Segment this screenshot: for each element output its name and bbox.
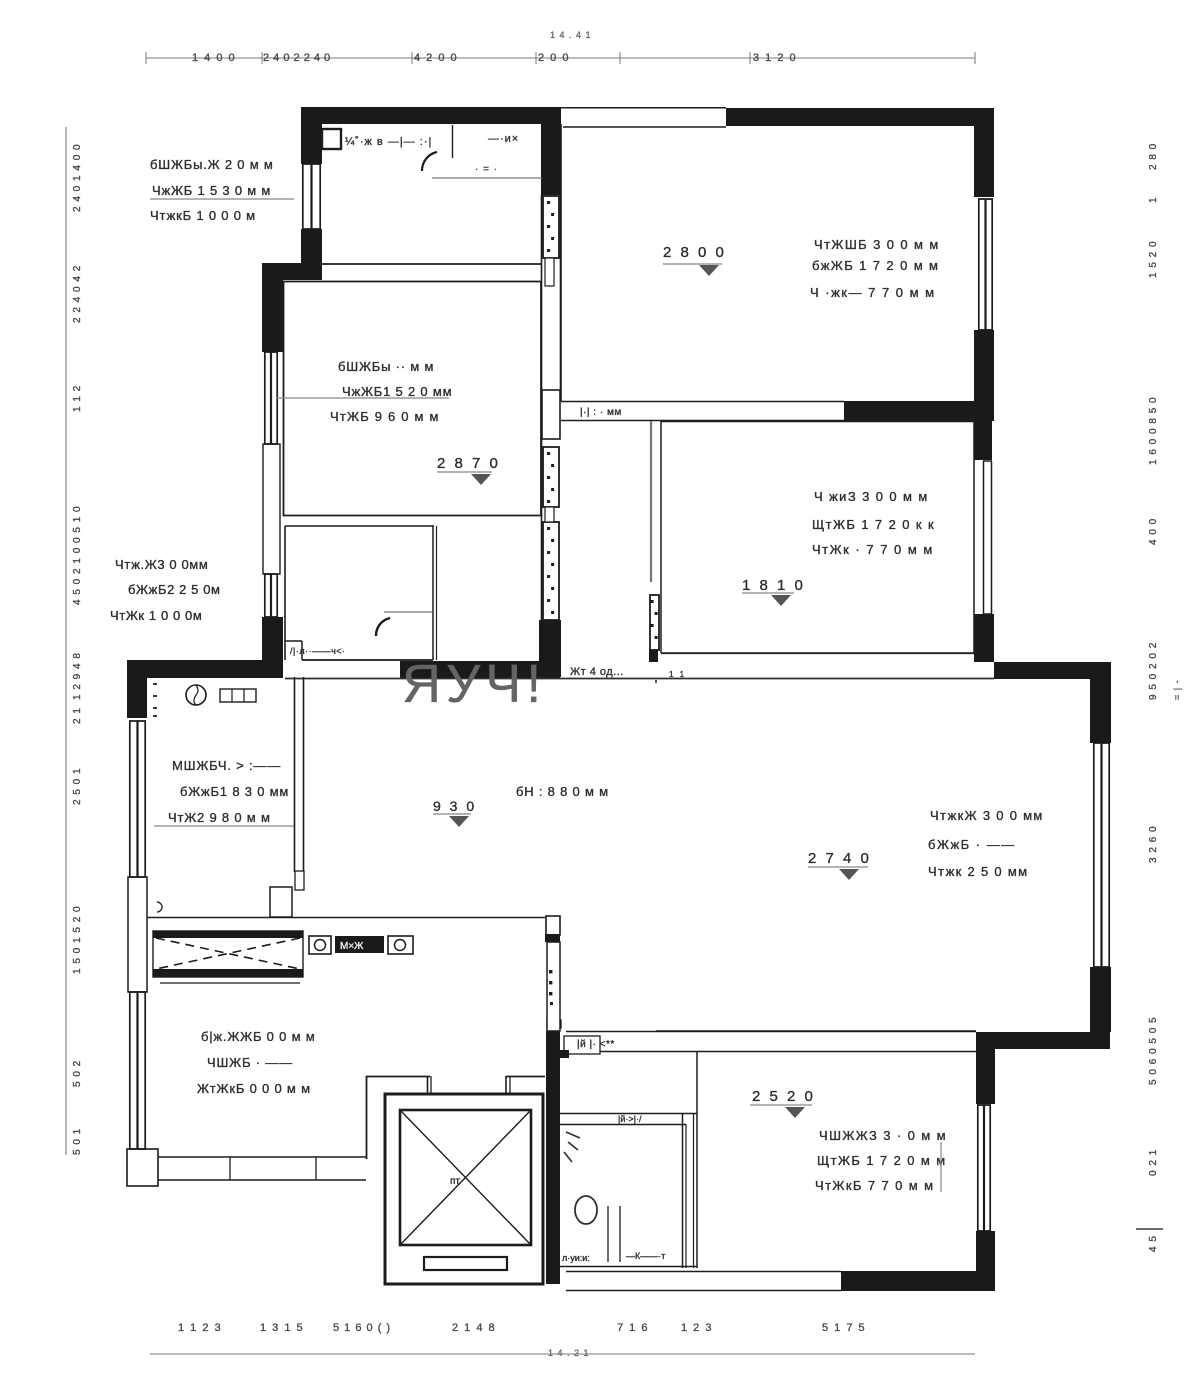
svg-text:|й |· <**: |й |· <** (577, 1039, 615, 1050)
svg-text:2 8 0: 2 8 0 (1148, 143, 1159, 170)
svg-text:|·| : · мм: |·| : · мм (580, 407, 622, 418)
svg-text:· = ·: · = · (475, 164, 498, 175)
svg-text:1 1: 1 1 (669, 670, 686, 679)
svg-text:ЧШЖБ · ——: ЧШЖБ · —— (207, 1055, 293, 1070)
svg-text:б|ж.ЖЖБ 0 0 м м: б|ж.ЖЖБ 0 0 м м (201, 1029, 315, 1044)
svg-text:ЧтЖк 1 0 0 0м: ЧтЖк 1 0 0 0м (110, 608, 202, 623)
svg-text:—К——·т: —К——·т (626, 1251, 665, 1261)
svg-text:1 5 2 0: 1 5 2 0 (1148, 240, 1159, 278)
svg-text:4 5 0 2 1 0 0 5 1 0: 4 5 0 2 1 0 0 5 1 0 (72, 505, 83, 605)
svg-text:ЖтЖкБ 0 0 0 м м: ЖтЖкБ 0 0 0 м м (197, 1081, 311, 1096)
svg-text:5 1 7 5: 5 1 7 5 (822, 1322, 866, 1334)
svg-text:Жт 4 од...: Жт 4 од... (570, 666, 624, 678)
svg-text:1 4 0 0: 1 4 0 0 (192, 52, 236, 64)
svg-text:3 2 6 0: 3 2 6 0 (1148, 825, 1159, 863)
svg-text:5 1 6 0 ( ): 5 1 6 0 ( ) (333, 1322, 391, 1334)
svg-text:1 3 1 5: 1 3 1 5 (260, 1322, 304, 1334)
svg-text:М×Ж: М×Ж (340, 941, 364, 952)
svg-text:ЩтЖБ 1 7 2 0 к к: ЩтЖБ 1 7 2 0 к к (812, 517, 935, 532)
svg-text:/|·л··——ч<·: /|·л··——ч<· (290, 646, 346, 656)
svg-text:1 8 1 0: 1 8 1 0 (742, 577, 805, 594)
svg-text:1 1 2 3: 1 1 2 3 (178, 1322, 222, 1334)
svg-text:4 0 0: 4 0 0 (1148, 518, 1159, 545)
svg-text:2 1 4 8: 2 1 4 8 (452, 1322, 496, 1334)
svg-text:МШЖБЧ. > :——: МШЖБЧ. > :—— (172, 758, 281, 773)
svg-text:2 5 2 0: 2 5 2 0 (752, 1088, 815, 1105)
svg-text:ЩтЖБ 1 7 2 0 м м: ЩтЖБ 1 7 2 0 м м (817, 1153, 947, 1168)
svg-text:Ч жиЗ 3 0 0 м м: Ч жиЗ 3 0 0 м м (814, 489, 929, 504)
svg-text:2 2 4 0 4 2: 2 2 4 0 4 2 (72, 265, 83, 323)
svg-text:Чтжк 2 5 0 мм: Чтжк 2 5 0 мм (928, 864, 1028, 879)
svg-text:пт: пт (450, 1176, 460, 1187)
svg-text:ЧтжкЖ 3 0 0 мм: ЧтжкЖ 3 0 0 мм (930, 808, 1044, 823)
svg-text:7 1 6: 7 1 6 (617, 1322, 649, 1334)
svg-text:9 3 0: 9 3 0 (433, 798, 477, 814)
svg-text:―·и×: ―·и× (488, 133, 519, 145)
svg-text:2 4 0 2 2 4 0: 2 4 0 2 2 4 0 (263, 52, 331, 64)
svg-text:2 8 7 0: 2 8 7 0 (437, 455, 500, 472)
svg-text:Ч ·жк— 7 7 0 м м: Ч ·жк— 7 7 0 м м (810, 285, 936, 300)
svg-text:|й·>|·/: |й·>|·/ (618, 1114, 642, 1124)
svg-text:4 2 0 0: 4 2 0 0 (414, 52, 458, 64)
svg-text:2 1: 2 1 (72, 707, 83, 724)
svg-text:1 4 . 4 1: 1 4 . 4 1 (550, 30, 592, 40)
svg-text:3 1 2 0: 3 1 2 0 (753, 52, 797, 64)
svg-text:л·уи:и:: л·уи:и: (562, 1253, 590, 1263)
svg-text:ЧжЖБ 1 5 3 0 м м: ЧжЖБ 1 5 3 0 м м (152, 183, 271, 198)
svg-text:0 2 1: 0 2 1 (1148, 1149, 1159, 1176)
svg-text:ЧШЖЖЗ 3 · 0 м м: ЧШЖЖЗ 3 · 0 м м (819, 1128, 947, 1143)
svg-text:2 4 0 1 4 0 0: 2 4 0 1 4 0 0 (72, 143, 83, 212)
svg-text:2 7 4 0: 2 7 4 0 (808, 850, 871, 867)
svg-text:1 2 3: 1 2 3 (681, 1322, 713, 1334)
svg-text:2 8 0 0: 2 8 0 0 (663, 244, 726, 261)
svg-text:ЧтЖБ 9 6 0 м м: ЧтЖБ 9 6 0 м м (330, 409, 440, 424)
svg-text:1 5 0 1 5 2 0: 1 5 0 1 5 2 0 (72, 905, 83, 974)
svg-text:бШЖБы ·· м м: бШЖБы ·· м м (338, 359, 434, 374)
svg-text:1: 1 (1148, 196, 1159, 203)
svg-text:ЧтЖк · 7 7 0 м м: ЧтЖк · 7 7 0 м м (812, 542, 934, 557)
svg-text:бЖжБ2 2 5 0м: бЖжБ2 2 5 0м (128, 582, 221, 597)
svg-text:ЧтЖкБ 7 7 0 м м: ЧтЖкБ 7 7 0 м м (815, 1178, 934, 1193)
svg-text:5 0 1: 5 0 1 (72, 1128, 83, 1155)
svg-text:бЖжБ1 8 3 0 мм: бЖжБ1 8 3 0 мм (180, 784, 289, 799)
svg-text:ЧтЖ2 9 8 0 м м: ЧтЖ2 9 8 0 м м (168, 810, 271, 825)
svg-text:1 6 0 0 8 5 0: 1 6 0 0 8 5 0 (1148, 396, 1159, 465)
svg-text:ЧтЖШБ 3 0 0 м м: ЧтЖШБ 3 0 0 м м (814, 237, 940, 252)
svg-text:бШЖБы.Ж 2 0 м м: бШЖБы.Ж 2 0 м м (150, 157, 274, 172)
svg-text:¼˚·ж в —|— :·|: ¼˚·ж в —|— :·| (345, 136, 432, 148)
svg-text:= | -: = | - (1172, 679, 1182, 700)
svg-text:1 2 9 4 8: 1 2 9 4 8 (72, 652, 83, 700)
svg-text:Чтж.Ж3 0 0мм: Чтж.Ж3 0 0мм (115, 557, 208, 572)
svg-text:ЧтжкБ 1 0 0 0 м: ЧтжкБ 1 0 0 0 м (150, 208, 256, 223)
svg-text:9 5 0 2 0 2: 9 5 0 2 0 2 (1148, 642, 1159, 700)
svg-text:5 0 6 0 5 0 5: 5 0 6 0 5 0 5 (1148, 1016, 1159, 1085)
svg-text:1 1 2: 1 1 2 (72, 385, 83, 412)
svg-text:ЯУЧ!: ЯУЧ! (402, 654, 546, 714)
svg-text:5 0 2: 5 0 2 (72, 1060, 83, 1087)
svg-text:4 5: 4 5 (1148, 1235, 1159, 1252)
svg-text:2 5 0 1: 2 5 0 1 (72, 767, 83, 805)
svg-text:2 0 0: 2 0 0 (538, 52, 570, 64)
svg-text:бЖжБ · ——: бЖжБ · —— (928, 837, 1016, 852)
svg-text:бжЖБ 1 7 2 0 м м: бжЖБ 1 7 2 0 м м (812, 258, 939, 273)
svg-text:ЧжЖБ1 5 2 0 мм: ЧжЖБ1 5 2 0 мм (342, 384, 452, 399)
svg-text:бН : 8 8 0 м м: бН : 8 8 0 м м (516, 784, 609, 799)
svg-text:1 4 . 2 1: 1 4 . 2 1 (548, 1348, 590, 1358)
